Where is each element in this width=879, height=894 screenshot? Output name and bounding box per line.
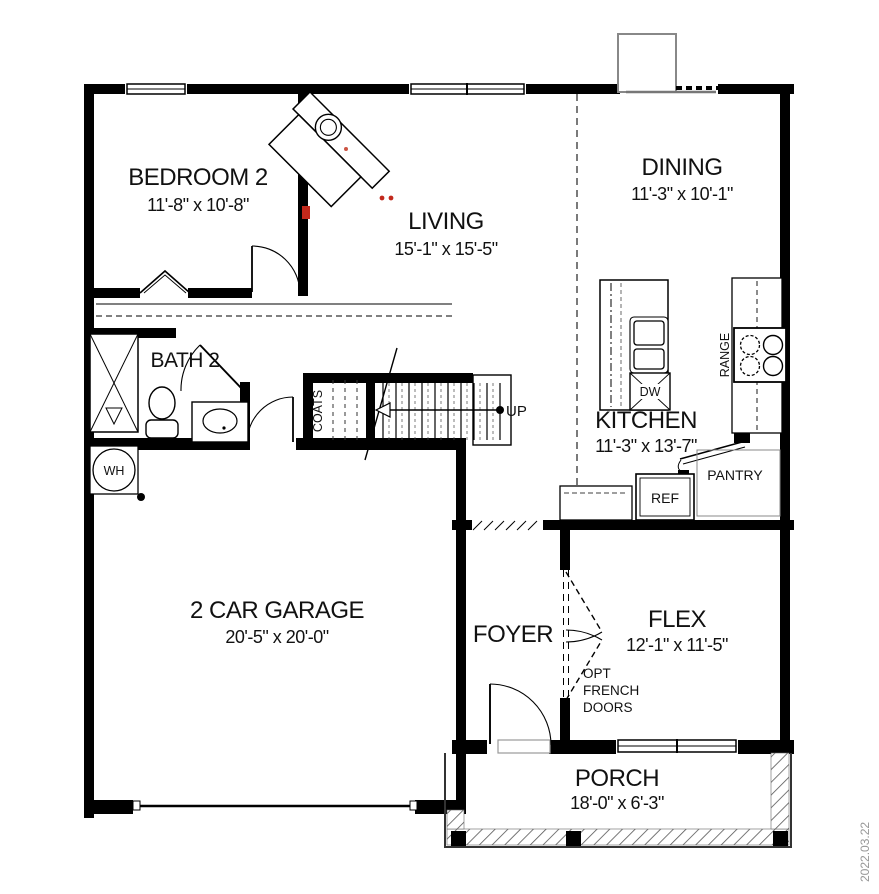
porch-dims: 18'-0" x 6'-3" (570, 793, 664, 813)
bedroom2-dims: 11'-8" x 10'-8" (147, 195, 249, 215)
bath2-label: BATH 2 (151, 349, 220, 372)
shower (90, 334, 138, 432)
dining-label: DINING (642, 154, 723, 181)
bedroom-window (127, 84, 185, 94)
range-cooktop (734, 328, 786, 382)
dishwasher-label: DW (640, 385, 661, 399)
up-label: UP (506, 403, 527, 420)
porch-post (773, 831, 788, 846)
toilet (146, 387, 178, 438)
porch-post (566, 831, 581, 846)
porch-label: PORCH (575, 765, 659, 792)
date-stamp: 2022.03.22 (858, 822, 872, 882)
vanity-sink (192, 402, 248, 442)
bedroom2-label: BEDROOM 2 (128, 164, 268, 191)
foyer-label: FOYER (473, 621, 553, 648)
pantry-label: PANTRY (707, 467, 763, 483)
living-label: LIVING (408, 208, 484, 235)
water-heater-label: WH (104, 464, 125, 478)
kitchen-label: KITCHEN (595, 407, 697, 434)
coats-label: COATS (311, 390, 325, 432)
flex-window (618, 739, 736, 753)
porch-post (451, 831, 466, 846)
floor-plan-drawing: BEDROOM 2 11'-8" x 10'-8" LIVING 15'-1" … (0, 0, 879, 894)
opt-french-doors-label-1: OPT (583, 666, 611, 681)
bottom-counter (560, 486, 632, 520)
range-label: RANGE (718, 333, 732, 377)
flex-dims: 12'-1" x 11'-5" (626, 635, 728, 655)
kitchen-dims: 11'-3" x 13'-7" (595, 436, 697, 456)
garage-label: 2 CAR GARAGE (190, 597, 364, 624)
opt-french-doors-label-3: DOORS (583, 700, 633, 715)
refrigerator-label: REF (651, 490, 679, 506)
island-sink (630, 317, 668, 373)
garage-dims: 20'-5" x 20'-0" (225, 627, 328, 647)
flex-label: FLEX (648, 606, 707, 633)
living-window (411, 83, 524, 95)
dining-dims: 11'-3" x 10'-1" (631, 184, 733, 204)
opt-french-doors-label-2: FRENCH (583, 683, 639, 698)
living-dims: 15'-1" x 15'-5" (394, 239, 497, 259)
floor-plan-page: BEDROOM 2 11'-8" x 10'-8" LIVING 15'-1" … (0, 0, 879, 894)
